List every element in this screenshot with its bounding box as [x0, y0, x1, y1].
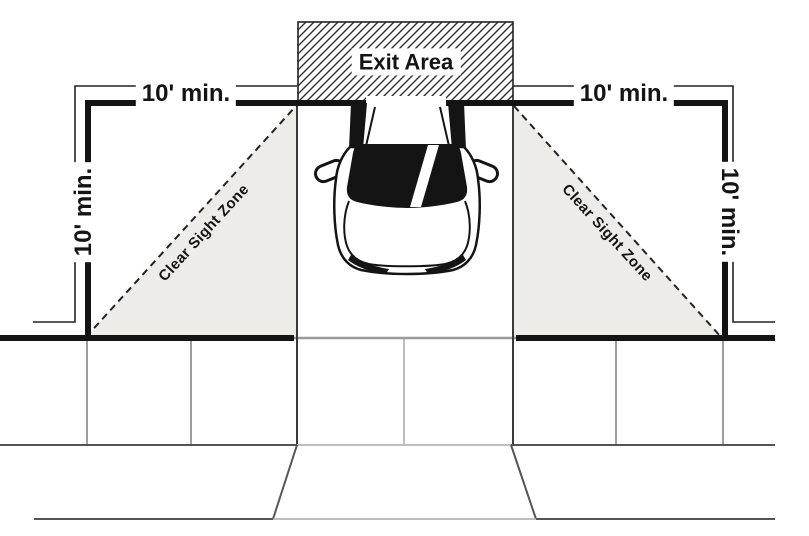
- dimension-label-top-left: 10' min.: [136, 80, 236, 108]
- car-side-right: [448, 103, 466, 149]
- car-a-pillar-left: [366, 107, 375, 146]
- driveway-flare-right: [511, 445, 536, 519]
- car-side-left: [349, 103, 367, 149]
- sight-zone-diagram: Exit Area 10' min. 10' min. 10' min. 10'…: [0, 0, 809, 536]
- driveway-flare-left: [273, 445, 297, 519]
- car-windshield: [347, 144, 467, 208]
- sidewalk-joints: [87, 338, 723, 444]
- car-a-pillar-right: [440, 107, 449, 146]
- dimension-label-top-right: 10' min.: [574, 80, 674, 108]
- site-plan-drawing: [0, 0, 809, 536]
- dimension-label-left: 10' min.: [70, 162, 98, 262]
- car-illustration: [313, 96, 500, 274]
- dimension-label-right: 10' min.: [715, 162, 743, 262]
- car-roof: [366, 96, 446, 109]
- exit-area-label: Exit Area: [352, 48, 461, 75]
